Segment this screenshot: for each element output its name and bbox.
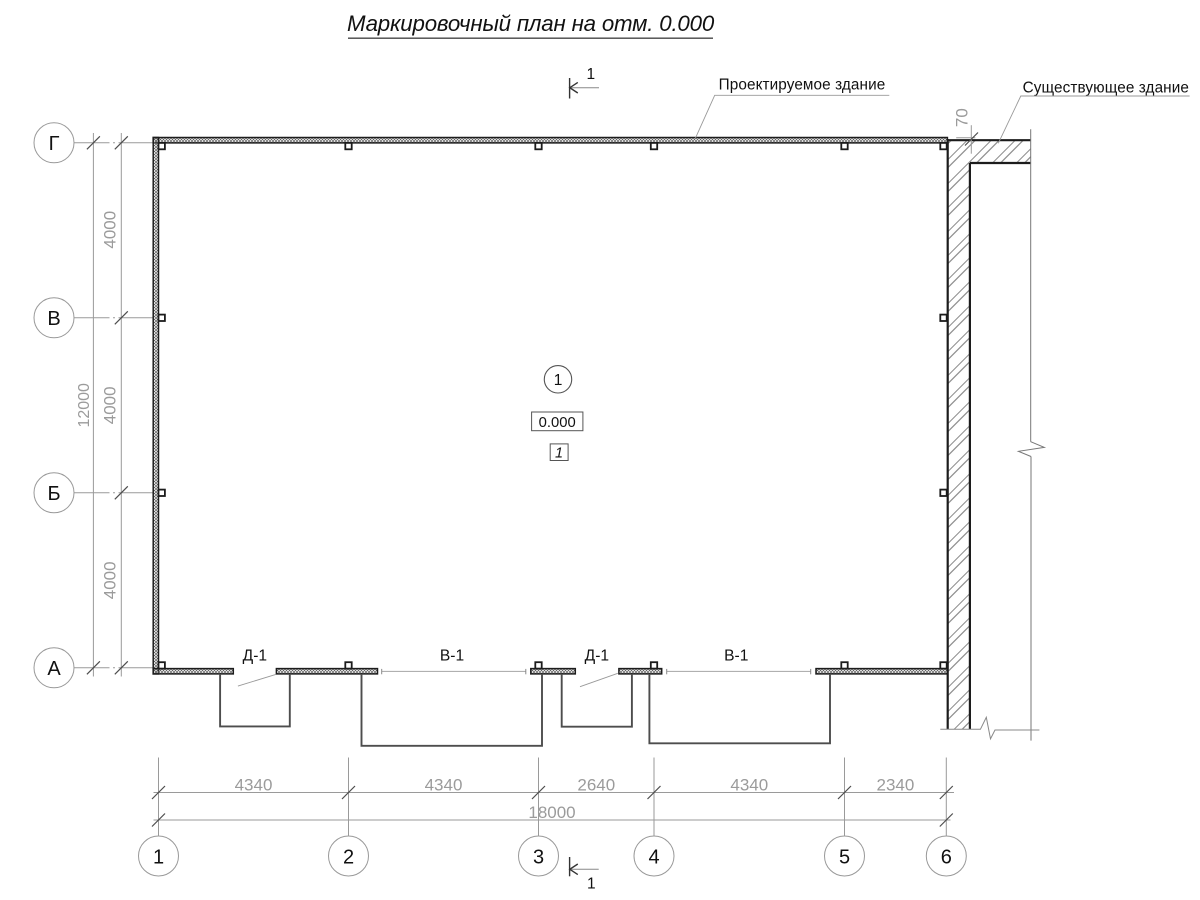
svg-text:6: 6 bbox=[941, 846, 952, 868]
svg-text:В-1: В-1 bbox=[440, 648, 464, 665]
svg-text:70: 70 bbox=[952, 108, 971, 127]
svg-text:1: 1 bbox=[153, 846, 164, 868]
svg-text:2640: 2640 bbox=[577, 776, 615, 795]
svg-text:А: А bbox=[47, 658, 61, 680]
svg-text:В: В bbox=[47, 308, 60, 330]
svg-text:4000: 4000 bbox=[101, 386, 120, 424]
svg-text:0.000: 0.000 bbox=[539, 415, 576, 431]
svg-text:4340: 4340 bbox=[235, 776, 273, 795]
svg-text:12000: 12000 bbox=[76, 383, 93, 428]
svg-text:4000: 4000 bbox=[101, 211, 120, 249]
svg-text:4340: 4340 bbox=[425, 776, 463, 795]
svg-text:Существующее здание: Существующее здание bbox=[1023, 80, 1189, 97]
svg-text:2340: 2340 bbox=[876, 776, 914, 795]
svg-text:Д-1: Д-1 bbox=[585, 648, 609, 665]
svg-text:Г: Г bbox=[49, 133, 60, 155]
svg-text:4340: 4340 bbox=[730, 776, 768, 795]
svg-text:1: 1 bbox=[555, 446, 563, 462]
svg-text:Д-1: Д-1 bbox=[243, 648, 267, 665]
svg-text:5: 5 bbox=[839, 846, 850, 868]
svg-text:В-1: В-1 bbox=[724, 648, 748, 665]
svg-text:Б: Б bbox=[47, 483, 60, 505]
svg-text:1: 1 bbox=[587, 876, 596, 893]
svg-text:18000: 18000 bbox=[528, 803, 575, 822]
svg-text:1: 1 bbox=[554, 372, 563, 389]
svg-text:4000: 4000 bbox=[101, 561, 120, 599]
svg-text:Проектируемое здание: Проектируемое здание bbox=[719, 77, 886, 94]
svg-text:Маркировочный план на отм. 0.0: Маркировочный план на отм. 0.000 bbox=[347, 11, 715, 36]
svg-text:1: 1 bbox=[586, 66, 595, 83]
svg-text:4: 4 bbox=[648, 846, 659, 868]
svg-text:3: 3 bbox=[533, 846, 544, 868]
svg-text:2: 2 bbox=[343, 846, 354, 868]
